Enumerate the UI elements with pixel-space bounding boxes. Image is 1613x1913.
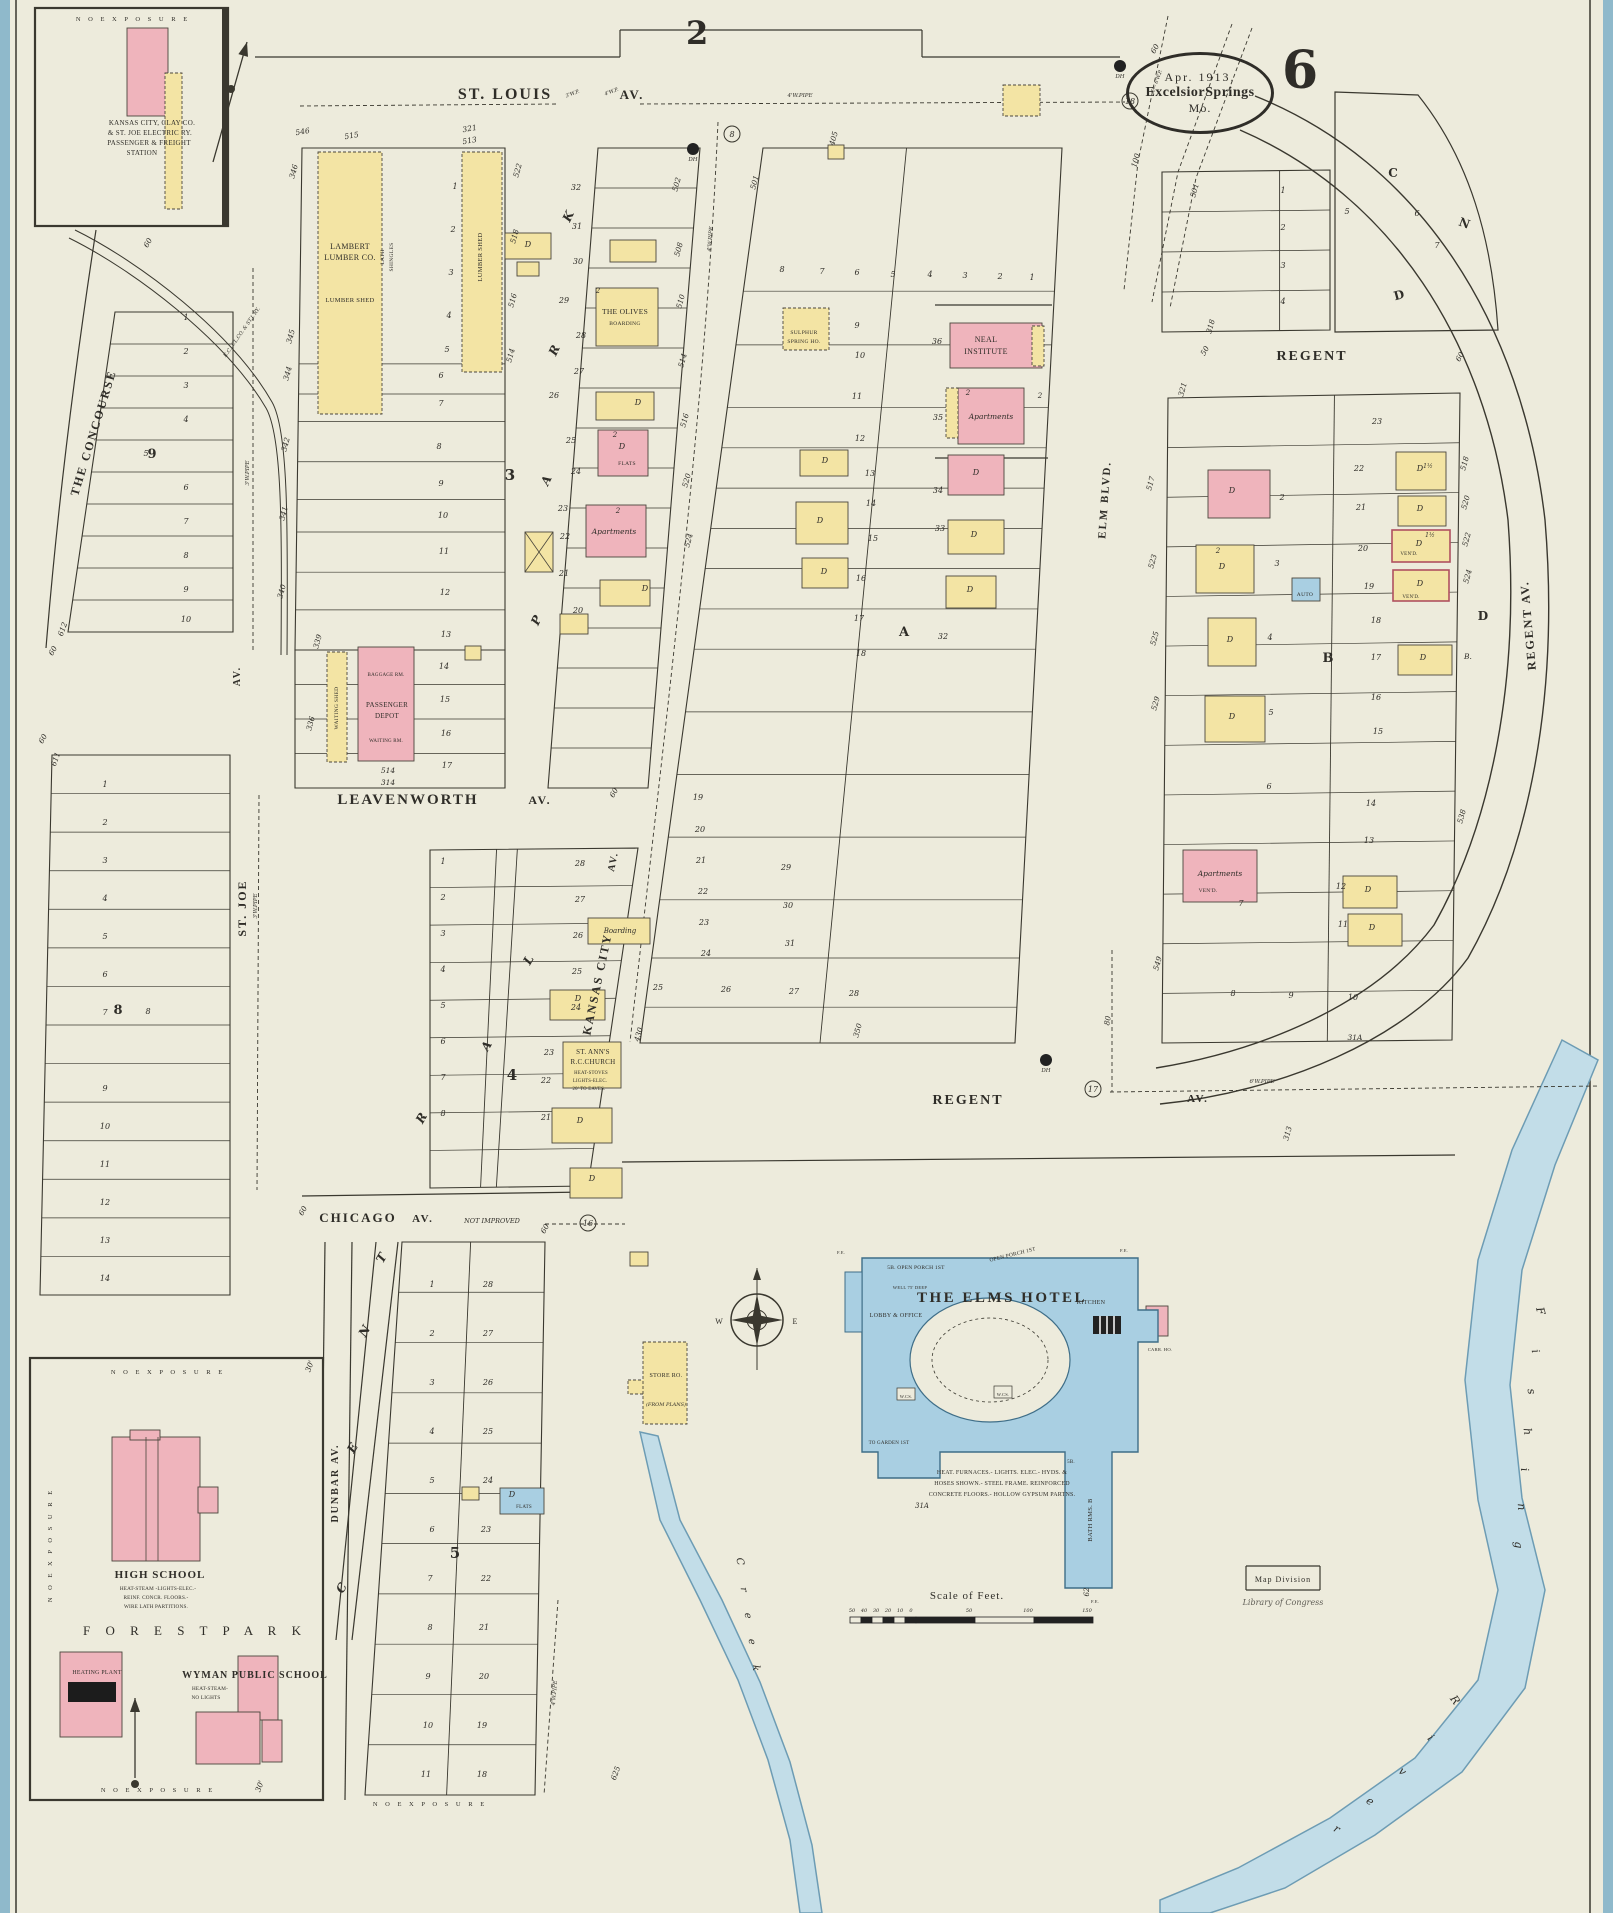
map-label-n: 8 [436,442,441,451]
map-label-n: 60 [37,732,50,745]
map-label-lb: INSTITUTE [964,347,1008,356]
map-label-n: 4 [182,415,188,424]
map-label-pk: L [520,953,537,968]
map-label-ex: N O E X P O S U R E [101,1787,215,1794]
map-label-n: 10 [438,511,448,520]
map-label-n: 529 [1149,695,1161,711]
map-label-ti: BAGGAGE RM. [368,673,405,678]
map-label-st: KANSAS CITY [579,932,614,1036]
map-label-it: D [970,530,978,539]
map-label-lb: KANSAS CITY, CLAY CO. [109,119,195,127]
map-label-n: 28 [482,1280,493,1289]
building [1003,85,1040,116]
map-label-n: 6 [429,1525,434,1534]
map-label-n: 31A [1348,1033,1364,1042]
map-label-n: 22 [697,887,708,896]
map-label-n: 12 [1336,882,1346,891]
map-label-lb: WAITING SHED [334,687,340,730]
map-label-n: 314 [381,778,396,787]
map-label-lb: STORE RO. [650,1373,683,1379]
map-label-n: 2 [1279,223,1285,232]
map-label-n: 6 [438,371,443,380]
map-label-ex: N O E X P O S U R E [111,1369,225,1376]
map-label-n: 27 [573,367,585,376]
map-label-n: 21 [540,1113,551,1122]
map-label-lb: SPRING HO. [787,339,821,345]
map-label-n: 16 [1371,693,1381,702]
north-arrowhead [238,42,248,57]
map-label-n: 517 [1144,475,1156,491]
map-label-it: D [966,585,974,594]
map-label-n: 9 [425,1672,430,1681]
map-label-n: 21 [558,569,569,578]
map-label-ti: TO GARDEN 1ST [869,1441,910,1446]
map-label-n: 12 [100,1198,110,1207]
scale-segment [905,1617,916,1623]
map-label-lb: BOARDING [609,321,640,327]
map-label-lb: R.C.CHURCH [570,1058,615,1066]
building [1032,326,1044,366]
map-label-ti: VEN'D. [1402,595,1419,600]
map-label-n: 4 [1266,633,1272,642]
map-label-n: 27 [482,1329,494,1338]
map-label-it: D [1368,923,1376,932]
map-label-wv: s [1525,1387,1539,1395]
lot-line [430,886,632,888]
building [130,1430,160,1440]
map-label-pk: T [373,1250,390,1266]
map-label-n: 20 [694,825,705,834]
map-label-n: 16 [441,729,451,738]
map-label-it: D [1228,712,1236,721]
map-label-n: 515 [344,130,360,141]
map-label-n: 150 [1082,1608,1092,1614]
map-label-n: 4 [428,1427,434,1436]
map-label-n: 514 [504,347,516,363]
heating-plant-boiler [68,1682,116,1702]
sheet-number: 6 [1282,40,1318,101]
building [517,262,539,276]
map-label-n: 60 [1454,350,1467,363]
lot-line [1165,692,1456,696]
map-label-n: 524 [1461,568,1473,584]
map-label-st: REGENT AV. [1517,580,1539,671]
map-label-n: 1½ [1423,463,1433,470]
map-label-lc: Library of Congress [1242,1598,1324,1607]
map-label-n: 516 [506,292,518,308]
map-label-n: 26 [482,1378,493,1387]
left-edge-strip [0,0,10,1913]
map-label-st: AV. [232,666,243,686]
map-label-n: 3 [448,268,453,277]
map-label-wv: i [1529,1348,1542,1354]
map-label-n: 24 [570,1003,581,1012]
map-label-it: D [1419,653,1427,662]
map-label-lb: SHINGLES [389,243,395,272]
map-label-ti: HEAT-STOVES [574,1071,608,1076]
sanborn-map-sheet: { "title": {"date":"Apr. 1913.","city":"… [0,0,1613,1913]
map-label-n: 2 [1037,392,1043,400]
building [630,1252,648,1266]
map-label-bk: B [1323,651,1334,666]
map-label-st: AV. [606,850,621,872]
building [610,240,656,262]
map-label-hs: WYMAN PUBLIC SCHOOL [182,1670,328,1681]
scale-segment [872,1617,883,1623]
lot-line [1164,791,1455,795]
map-label-n: 25 [482,1427,493,1436]
map-label-it: D [588,1174,596,1183]
map-label-ti: VEN'D. [1199,888,1218,894]
map-label-n: 7 [440,1073,446,1082]
water-pipe-line [300,104,556,106]
map-label-n: 11 [852,392,862,401]
map-label-lb: LATH [380,249,386,264]
map-label-n: 21 [695,856,706,865]
map-label-pk: A [538,473,555,488]
map-label-wv: n [1515,1503,1528,1511]
map-city: ExcelsiorSprings [1145,85,1254,101]
map-label-n: 345 [284,328,296,344]
map-label-n: 1 [1280,186,1285,195]
map-label-n: DH [1040,1068,1050,1074]
map-label-ti: CONCRETE FLOORS.- HOLLOW GYPSUM PARTNS. [929,1492,1076,1498]
map-label-n: 18 [1371,616,1381,625]
map-label-ti: HEAT-STEAM -LIGHTS-ELEC.- [120,1586,196,1592]
map-label-bk: A [898,625,910,640]
map-label-n: 22 [1353,464,1364,473]
map-label-n: 8 [145,1007,150,1016]
building [196,1712,260,1764]
map-label-n: 29 [558,296,569,305]
map-label-n: 23 [480,1525,491,1534]
map-label-it: D [1226,635,1234,644]
map-label-n: 27 [788,987,800,996]
map-label-n: 524 [682,532,694,548]
scale-segment [894,1617,905,1623]
map-label-n: 21 [1355,503,1366,512]
map-label-st: REGENT [1276,349,1347,364]
map-label-n: 35 [933,413,943,422]
map-label-n: 7 [102,1008,108,1017]
lot-line [1162,990,1452,993]
map-label-it: D [816,516,824,525]
double-hydrant-dot [1040,1054,1052,1066]
map-label-lb: FLATS [618,461,636,467]
map-label-ti: W.CS. [997,1392,1010,1397]
map-label-n: 2 [996,272,1002,281]
map-label-n: B. [1463,652,1472,661]
map-label-it: D [1228,486,1236,495]
map-label-ti: HEAT. FURNACES.- LIGHTS. ELEC.- HYDS. & [937,1470,1067,1476]
map-label-st: AV. [1187,1093,1209,1105]
map-label-n: 525 [1148,630,1160,646]
map-label-n: 50 [849,1608,856,1614]
map-label-n: 5 [890,270,895,279]
map-label-lb: HEATING PLANT [72,1670,121,1676]
map-label-n: 5 [429,1476,434,1485]
map-label-n: 9 [1288,991,1293,1000]
map-label-lb: KITCHEN [1077,1300,1106,1306]
map-label-n: 612 [56,621,69,638]
building [238,1656,278,1720]
map-label-n: 20 [478,1672,489,1681]
building [950,323,1042,368]
compass-north-arrowhead [753,1268,761,1280]
map-label-n: 24 [700,949,711,958]
map-label-n: 62 [1083,1587,1091,1596]
map-label-bk: D [1392,287,1406,303]
inset-thick-bar [222,8,228,226]
map-label-n: 7 [1434,241,1440,250]
map-label-n: 4 [1279,297,1285,306]
map-label-n: 3 [962,271,967,280]
map-label-n: 25 [565,436,576,445]
map-label-it: D [1416,504,1424,513]
map-label-n: 321 [1176,381,1188,397]
double-hydrant-dot [687,143,699,155]
map-label-eh: THE ELMS HOTEL [917,1290,1087,1306]
map-label-st: LEAVENWORTH [337,792,478,808]
map-label-ti: W.CS. [900,1394,913,1399]
map-label-pk: P [528,612,545,628]
creek [640,1432,822,1913]
map-label-pk: E [344,1440,362,1457]
map-label-ex: N O E X P O S U R E [373,1801,487,1808]
map-label-n: 30 [873,1608,880,1614]
map-label-n: 23 [543,1048,554,1057]
map-label-ti: HEAT-STEAM- [192,1686,228,1692]
map-label-n: 10 [423,1721,433,1730]
map-label-n: 501 [1188,182,1200,198]
map-label-it: D [1415,539,1423,548]
map-label-n: 6 [854,268,859,277]
map-label-ti: WAITING RM. [369,739,403,744]
map-label-n: 3 [183,381,188,390]
map-label-wv: e [746,1638,757,1645]
map-label-st: ST. JOE [235,879,249,936]
map-label-n: 346 [287,163,299,179]
compass-ray [757,1315,783,1325]
building [127,28,168,116]
map-label-n: 19 [1364,582,1374,591]
map-label-st: ELM BLVD. [1096,460,1113,539]
adjacent-sheet-number: 2 [686,14,708,52]
map-label-n: 17 [442,761,453,770]
map-label-bk: 4 [507,1066,517,1084]
map-label-pp: 3'W.PIPE [253,893,259,918]
map-label-it: D [1416,464,1424,473]
map-label-n: 60 [47,644,60,657]
map-state: Mo. [1189,101,1212,116]
map-label-lb: LAMBERT [330,242,370,251]
map-label-it: (FROM PLANS) [646,1401,686,1408]
map-label-it: D [576,1116,584,1125]
map-label-n: 8 [183,551,188,560]
map-label-st: THE CONCOURSE [67,368,119,497]
right-edge-strip [1603,0,1613,1913]
map-label-n: 502 [670,176,682,192]
map-label-n: DH [1114,74,1124,80]
map-label-n: 29 [780,863,791,872]
map-label-ti: WELL 75' DEEP [893,1285,928,1290]
map-label-sc: Scale of Feet. [930,1590,1004,1602]
map-label-n: 34 [933,486,943,495]
map-label-n: 336 [304,715,316,731]
map-label-it: D [972,468,980,477]
map-label-n: 520 [1459,494,1471,510]
pipe-certificate-number: 17 [1088,1085,1099,1094]
building [198,1487,218,1513]
map-label-n: 12 [855,434,865,443]
map-label-st: REGENT [932,1093,1003,1108]
map-label-n: 10 [1348,993,1358,1002]
map-label-it: Boarding [603,927,637,935]
map-label-st: DUNBAR AV. [330,1443,341,1522]
map-label-it: Apartments [1197,869,1243,878]
map-label-n: 21 [478,1623,489,1632]
map-label-wv: i [1518,1467,1531,1472]
map-label-n: 2 [1278,493,1284,502]
map-label-n: 430 [632,1026,645,1043]
block-outline [640,148,1062,1043]
map-label-n: 26 [548,391,559,400]
map-label-n: 18 [856,649,866,658]
map-label-it: D [1364,885,1372,894]
building [1208,470,1270,518]
map-label-n: 7 [183,517,189,526]
map-label-bk: 9 [147,447,156,462]
title-oval: Apr. 1913. ExcelsiorSprings Mo. [1126,52,1274,134]
map-label-ti: HOSES SHOWN.- STEEL FRAME. REINFORCED [934,1481,1070,1487]
map-label-pp: 4'W.PIPE [551,1680,559,1706]
map-label-ti: REINF. CONCR. FLOORS.- [124,1595,189,1601]
map-label-n: 8 [1230,989,1235,998]
map-label-n: 4 [445,311,451,320]
map-label-n: 5 [102,932,107,941]
map-label-n: 1 [429,1280,434,1289]
map-label-n: 522 [1460,531,1472,547]
map-label-n: 32 [938,632,948,641]
map-label-ti: NO LIGHTS [191,1695,220,1701]
scale-segment [975,1617,1034,1623]
building [828,145,844,159]
map-label-n: 340 [275,583,287,599]
map-label-n: 31A [915,1502,929,1510]
map-label-n: 2 [612,431,618,439]
water-pipe-line [1110,1086,1598,1092]
map-label-n: 60 [297,1204,310,1217]
map-drawing: 8181716WEST. LOUISAV.LEAVENWORTHAV.CHICA… [0,0,1613,1913]
map-label-n: 7 [438,399,444,408]
map-label-n: 508 [672,241,684,257]
map-label-st: CHICAGO [319,1210,397,1225]
map-label-n: 17 [1371,653,1382,662]
map-label-n: 23 [698,918,709,927]
map-label-n: 2 [965,389,971,397]
map-label-n: 33 [935,524,945,533]
map-label-n: 321 [462,123,478,134]
map-label-bk: C [1388,166,1398,180]
map-label-it: D [618,442,626,451]
map-label-n: 26 [720,985,731,994]
map-label-n: 22 [540,1076,551,1085]
map-label-pp: K.C., CL.CO. & ST.J. RY. [222,306,262,359]
map-label-it: D [574,994,582,1003]
map-label-n: 100 [1023,1608,1033,1614]
map-label-wv: h [1521,1427,1535,1436]
map-label-n: 15 [440,695,450,704]
building [500,1488,544,1514]
map-label-ti: FLATS [516,1505,532,1510]
water-pipe-line [257,795,259,1190]
scale-segment [861,1617,872,1623]
alley-line [1327,395,1334,1041]
map-label-n: 24 [570,467,581,476]
map-label-n: 6 [440,1037,445,1046]
map-label-lb: LOBBY & OFFICE [870,1313,923,1319]
map-label-n: 1 [183,313,188,322]
building [643,1342,687,1424]
map-label-ti: VEN'D. [1400,552,1417,557]
map-label-n: 8 [427,1623,432,1632]
map-label-it: D [1416,579,1424,588]
map-label-n: 15 [868,534,878,543]
map-label-wv: g [1512,1541,1525,1548]
map-label-n: 13 [1364,836,1374,845]
map-label-ti: 20' TO EAVES. [573,1087,606,1092]
map-label-n: 513 [462,135,478,146]
map-label-pp: 6'W.PIPE [1249,1079,1274,1085]
map-label-bk: 8 [113,1003,122,1018]
map-label-n: 11 [421,1770,431,1779]
scale-segment [1034,1617,1093,1623]
map-label-n: 8 [779,265,784,274]
map-label-n: 3 [102,856,107,865]
map-label-n: 546 [295,126,311,137]
building [598,430,648,476]
map-label-n: 80 [1102,1015,1113,1026]
map-label-ti: WIRE LATH PARTITIONS. [124,1604,188,1610]
map-label-wv: e [742,1612,754,1619]
map-label-it: D [821,456,829,465]
map-label-n: 501 [748,174,760,190]
map-label-n: 24 [482,1476,493,1485]
map-label-bk: D [1478,609,1488,623]
map-label-ti: F.E. [1091,1599,1099,1604]
map-label-lb: LUMBER SHED [326,297,375,304]
map-label-lb: ST. ANN'S [576,1048,610,1056]
map-label-n: 11 [439,547,449,556]
map-label-n: 549 [1151,955,1163,971]
map-label-n: 30 [573,257,583,266]
map-label-n: 40 [860,1608,868,1614]
map-label-n: 10 [181,615,191,624]
map-label-ti: CARR. HO. [1148,1347,1172,1352]
map-label-n: 8 [440,1109,445,1118]
map-label-lb: AUTO [1297,592,1313,598]
building [112,1437,200,1561]
map-label-lb: PASSENGER & FREIGHT [107,139,191,147]
map-label-n: 1½ [1425,532,1435,539]
building [318,152,382,414]
alley-line [447,1242,471,1795]
map-label-n: 28 [848,989,859,998]
map-label-pk: R [412,1110,430,1127]
map-label-n: 2 [595,287,601,295]
building [560,614,588,634]
map-label-wv: k [750,1665,761,1671]
